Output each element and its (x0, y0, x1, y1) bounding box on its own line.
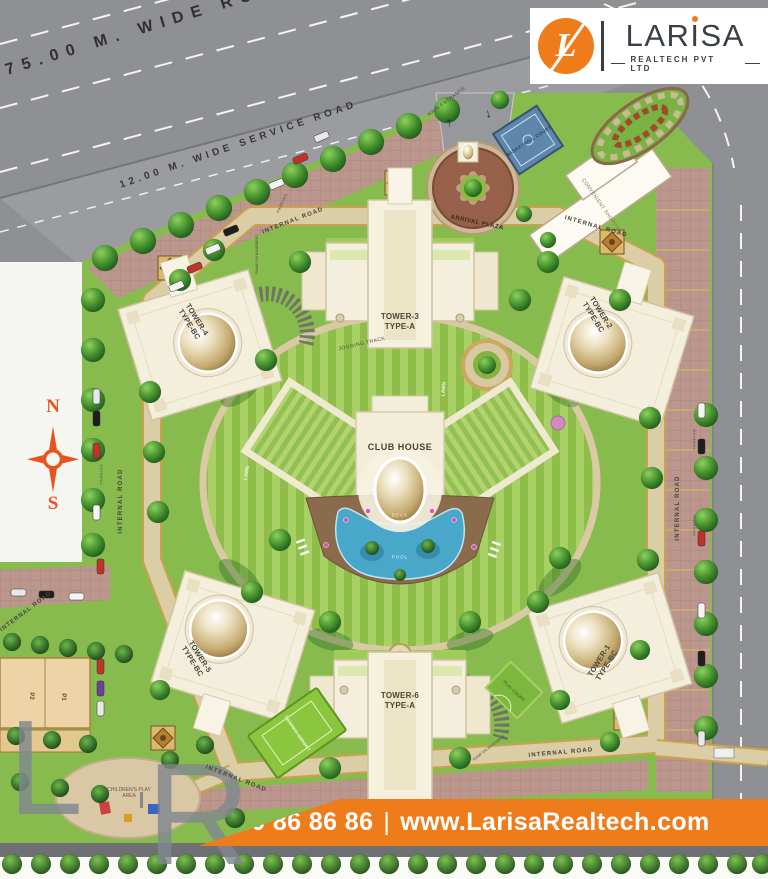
site-plan-artwork (0, 0, 768, 879)
parking-label-2: PARKING (692, 514, 697, 535)
watermark-letter-l: L (8, 700, 83, 835)
site-plan-map: 75.00 M. WIDE ROAD 12.00 M. WIDE SERVICE… (0, 0, 768, 879)
tower-3-type: TYPE-A (381, 322, 419, 332)
internal-road-label-4: INTERNAL ROAD (675, 475, 681, 540)
childrens-play-area-label: CHILDREN'S PLAY AREA (104, 787, 154, 799)
block-p2-label: P2 (28, 692, 34, 699)
logo-divider (601, 21, 604, 71)
tower-3-name: TOWER-3 (381, 312, 419, 322)
compass-rose-icon (20, 423, 86, 497)
compass-south-label: S (48, 493, 59, 515)
brand-logo: L LAR I SA REALTECH PVT LTD (530, 8, 768, 84)
parking-label-1: PARKING (692, 428, 697, 449)
club-house-label: CLUB HOUSE (368, 442, 433, 452)
logo-subtitle: REALTECH PVT LTD (611, 55, 761, 73)
watermark-letter-r: R (146, 742, 251, 879)
plot-margin-left (0, 262, 82, 562)
tower-6-label: TOWER-6 TYPE-A (381, 691, 419, 711)
logo-name-post: SA (701, 20, 745, 51)
tower-6-type: TYPE-A (381, 701, 419, 711)
banner-separator: | (383, 808, 390, 837)
logo-name-dotted-i: I (690, 20, 700, 51)
lawn-label-2: LAWN (440, 381, 447, 396)
internal-road-label-3: INTERNAL ROAD (118, 468, 124, 533)
tower-6-name: TOWER-6 (381, 691, 419, 701)
deck-label: DECK (392, 513, 409, 518)
pool-label: POOL (392, 555, 409, 560)
logo-mark-icon: L (538, 18, 594, 74)
parking-label-3: PARKING (99, 463, 104, 484)
logo-monogram: L (556, 27, 577, 65)
block-p1-label: P1 (60, 693, 66, 700)
website-url: www.LarisaRealtech.com (400, 808, 709, 837)
logo-name: LAR I SA (626, 20, 745, 51)
tower-3-label: TOWER-3 TYPE-A (381, 312, 419, 332)
exit-gate (714, 748, 734, 758)
ramp-label-1: RAMP DN BASEMENT (255, 234, 259, 273)
logo-name-pre: LAR (626, 20, 691, 51)
logo-text: LAR I SA REALTECH PVT LTD (611, 20, 761, 73)
compass-north-label: N (46, 396, 60, 418)
